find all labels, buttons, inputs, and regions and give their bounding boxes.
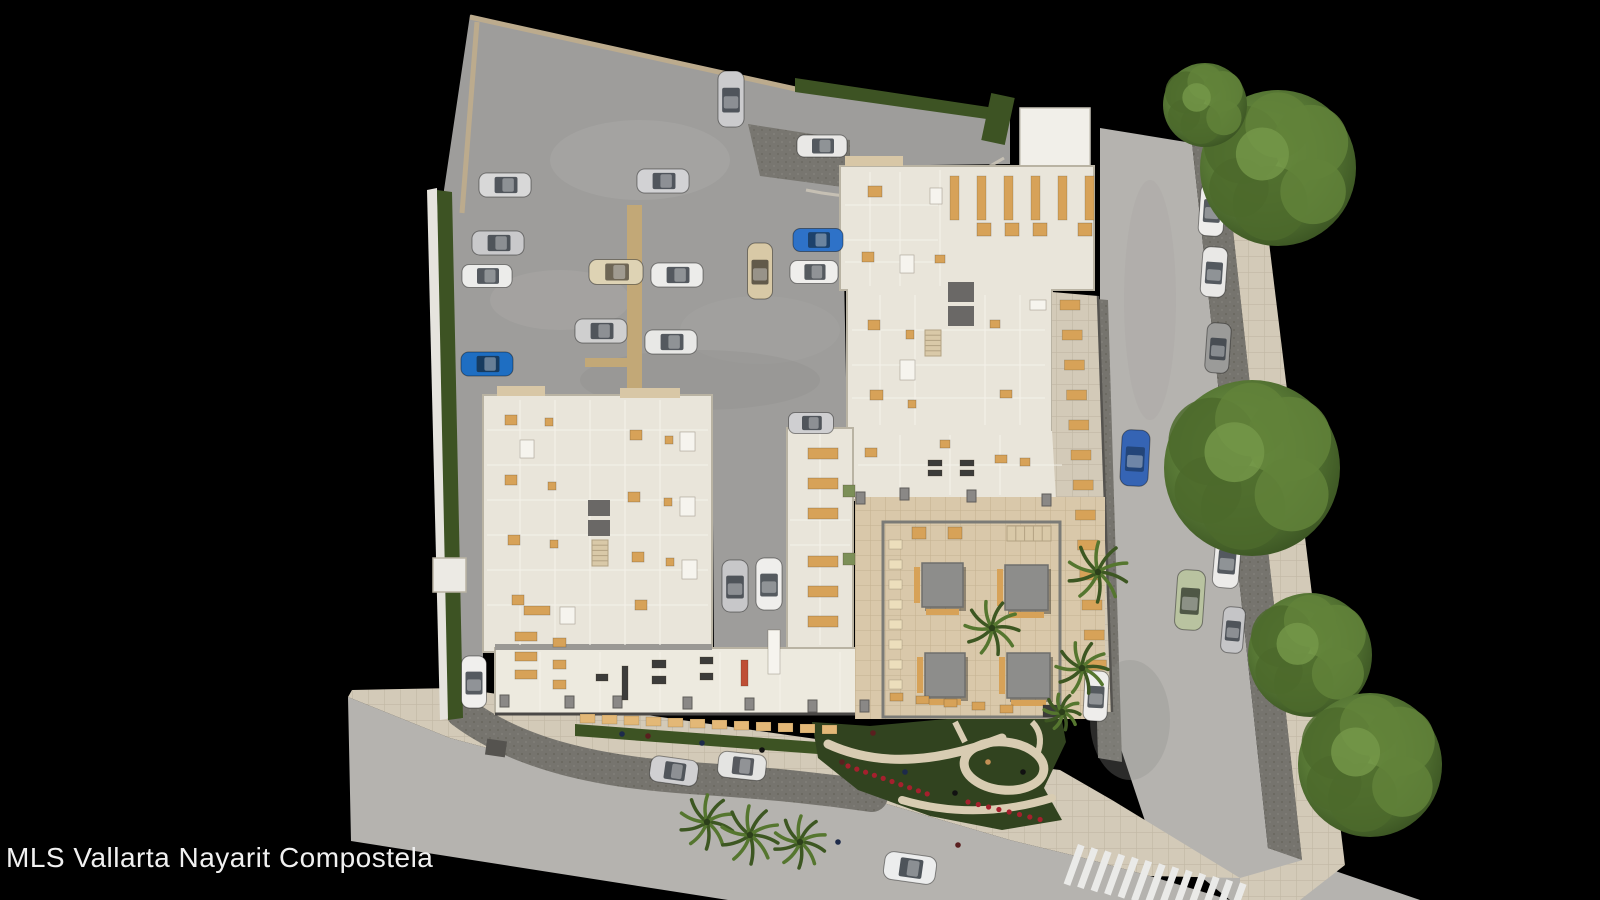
- pergola-chairs: [917, 657, 923, 693]
- furniture-amber: [808, 508, 838, 519]
- car: [645, 330, 697, 354]
- person: [699, 740, 705, 746]
- car: [589, 260, 643, 285]
- furniture-white: [1030, 300, 1046, 310]
- awnings: [800, 724, 815, 733]
- elevator-core: [948, 306, 974, 326]
- awnings: [646, 717, 661, 726]
- car: [1200, 246, 1228, 298]
- courtyard_chairs: [889, 540, 902, 549]
- car: [462, 656, 487, 708]
- terrace_tables: [1069, 420, 1089, 430]
- flower: [996, 807, 1001, 812]
- pergola: [914, 563, 966, 615]
- annex-roof-band: [495, 644, 712, 650]
- furniture-amber: [808, 616, 838, 627]
- furniture-amber: [995, 455, 1007, 463]
- flower: [916, 788, 921, 793]
- furniture-amber: [508, 535, 520, 545]
- furniture-dark: [928, 470, 942, 476]
- furniture-amber: [630, 430, 642, 440]
- site-plan-rendering: MLS Vallarta Nayarit Compostela: [0, 0, 1600, 900]
- car: [1204, 322, 1231, 374]
- flower: [1027, 814, 1032, 819]
- person: [955, 842, 961, 848]
- flower: [881, 776, 886, 781]
- awnings: [712, 720, 727, 729]
- furniture-amber: [1033, 223, 1047, 236]
- person: [839, 759, 845, 765]
- furniture-amber: [908, 400, 916, 408]
- lot-divider-stub: [585, 358, 627, 367]
- flower: [907, 785, 912, 790]
- furniture-amber: [1005, 223, 1019, 236]
- car: [462, 265, 512, 288]
- furniture-white: [520, 440, 534, 458]
- elevator-core: [948, 282, 974, 302]
- balcony: [845, 156, 903, 166]
- staircase: [1007, 526, 1051, 541]
- flower: [863, 770, 868, 775]
- person: [835, 839, 841, 845]
- car: [756, 558, 782, 610]
- car: [717, 751, 767, 782]
- pergola-chairs: [1011, 700, 1046, 706]
- flower: [854, 767, 859, 772]
- furniture-amber: [635, 600, 647, 610]
- furniture-amber: [664, 498, 672, 506]
- awnings: [822, 725, 837, 734]
- furniture-amber: [632, 552, 644, 562]
- furniture-amber: [870, 390, 883, 400]
- roof-pillar: [860, 700, 869, 712]
- person: [645, 733, 651, 739]
- furniture-amber: [916, 696, 929, 704]
- furniture-dark: [700, 673, 713, 680]
- furniture-white: [680, 432, 695, 451]
- restaurant_tables: [1085, 176, 1094, 220]
- restaurant_tables: [977, 176, 986, 220]
- furniture-amber: [940, 440, 950, 448]
- flower: [1017, 812, 1022, 817]
- person: [952, 790, 958, 796]
- awnings: [580, 714, 595, 723]
- elevator-core: [588, 500, 610, 516]
- furniture-white: [930, 188, 942, 204]
- terrace_tables: [1084, 630, 1104, 640]
- pergola-chairs: [999, 657, 1005, 694]
- furniture-white: [560, 607, 575, 624]
- furniture-dark: [622, 666, 628, 700]
- furniture-amber: [990, 320, 1000, 328]
- flower: [965, 799, 970, 804]
- courtyard_chairs: [889, 680, 902, 689]
- flower: [986, 804, 991, 809]
- flower: [845, 763, 850, 768]
- courtyard_chairs: [889, 620, 902, 629]
- courtyard_chairs: [889, 580, 902, 589]
- awnings: [756, 722, 771, 731]
- tree: [1298, 693, 1442, 837]
- terrace_tables: [1062, 330, 1082, 340]
- furniture-amber: [972, 702, 985, 710]
- car: [479, 173, 531, 197]
- courtyard_chairs: [889, 640, 902, 649]
- furniture-amber: [808, 478, 838, 489]
- roof-pillar: [683, 697, 692, 709]
- furniture-dark: [652, 660, 666, 668]
- balcony: [497, 386, 545, 396]
- furniture-dark: [960, 470, 974, 476]
- car: [1220, 606, 1246, 654]
- terrace_tables: [1073, 480, 1093, 490]
- car: [718, 71, 744, 127]
- terrace_tables: [1060, 300, 1080, 310]
- furniture-amber: [912, 527, 926, 539]
- tree: [1164, 380, 1340, 556]
- furniture-amber: [868, 186, 882, 197]
- furniture-amber: [1000, 390, 1012, 398]
- flower: [889, 779, 894, 784]
- awnings: [624, 716, 639, 725]
- furniture-amber: [553, 680, 566, 689]
- person: [619, 731, 625, 737]
- furniture-amber: [977, 223, 991, 236]
- car: [575, 319, 627, 343]
- car: [748, 243, 773, 299]
- furniture-dark: [652, 676, 666, 684]
- furniture-white: [682, 560, 697, 579]
- pergola-chairs: [914, 567, 920, 603]
- furniture-amber: [890, 693, 903, 701]
- restaurant_tables: [950, 176, 959, 220]
- pergola: [997, 565, 1051, 618]
- flower: [1007, 809, 1012, 814]
- roof-pillar: [1042, 494, 1051, 506]
- furniture-amber: [515, 670, 537, 679]
- tree: [1163, 63, 1247, 147]
- furniture-amber: [550, 540, 558, 548]
- furniture-amber: [862, 252, 874, 262]
- furniture-amber: [808, 586, 838, 597]
- furniture-amber: [906, 330, 914, 339]
- furniture-amber: [666, 558, 674, 566]
- roof-pillar: [613, 696, 622, 708]
- furniture-amber: [935, 255, 945, 263]
- furniture-amber: [505, 415, 517, 425]
- person: [759, 747, 765, 753]
- person: [985, 759, 991, 765]
- roof-pillar: [565, 696, 574, 708]
- terrace_tables: [1075, 510, 1095, 520]
- furniture-amber: [515, 652, 537, 661]
- furniture-amber: [868, 320, 880, 330]
- furniture-amber: [948, 527, 962, 539]
- terrace_tables: [1064, 360, 1084, 370]
- balcony: [620, 388, 680, 398]
- furniture-amber: [628, 492, 640, 502]
- furniture-green: [843, 553, 855, 565]
- furniture-dark: [700, 657, 713, 664]
- roof-pillar: [900, 488, 909, 500]
- person: [870, 730, 876, 736]
- courtyard_chairs: [889, 600, 902, 609]
- furniture-amber: [548, 482, 556, 490]
- flower: [1038, 817, 1043, 822]
- furniture-red: [741, 660, 748, 686]
- furniture-amber: [553, 660, 566, 669]
- furniture-amber: [665, 436, 673, 444]
- watermark-text: MLS Vallarta Nayarit Compostela: [6, 842, 433, 873]
- furniture-amber: [524, 606, 550, 615]
- car: [1120, 429, 1151, 486]
- furniture-dark: [596, 674, 608, 681]
- flower: [925, 791, 930, 796]
- furniture-dark: [928, 460, 942, 466]
- awnings: [690, 719, 705, 728]
- furniture-amber: [545, 418, 553, 426]
- drive-plate: [485, 739, 507, 758]
- roof-pillar: [500, 695, 509, 707]
- car: [472, 231, 524, 255]
- flower: [872, 773, 877, 778]
- awnings: [734, 721, 749, 730]
- car: [793, 229, 843, 252]
- furniture-amber: [808, 556, 838, 567]
- car: [789, 413, 834, 434]
- pergola: [999, 653, 1053, 706]
- car: [461, 352, 513, 376]
- furniture-amber: [865, 448, 877, 457]
- roof-pillar: [856, 492, 865, 504]
- car: [637, 169, 689, 193]
- car: [797, 135, 847, 157]
- restaurant_tables: [1058, 176, 1067, 220]
- furniture-white: [768, 630, 780, 674]
- car: [1174, 569, 1206, 631]
- furniture-white: [900, 360, 915, 380]
- gate-house: [433, 558, 466, 592]
- furniture-white: [900, 255, 914, 273]
- furniture-amber: [515, 632, 537, 641]
- furniture-amber: [1000, 705, 1013, 713]
- furniture-green: [843, 485, 855, 497]
- aerial-render-canvas: MLS Vallarta Nayarit Compostela: [0, 0, 1600, 900]
- furniture-amber: [944, 699, 957, 707]
- restaurant_tables: [1031, 176, 1040, 220]
- awnings: [778, 723, 793, 732]
- furniture-amber: [1020, 458, 1030, 466]
- pergola-chairs: [926, 609, 959, 615]
- furniture-amber: [553, 638, 566, 647]
- staircase: [592, 540, 608, 566]
- awnings: [668, 718, 683, 727]
- roof-pillar: [967, 490, 976, 502]
- roof-pillar: [745, 698, 754, 710]
- person: [902, 769, 908, 775]
- restaurant_tables: [1004, 176, 1013, 220]
- courtyard_chairs: [889, 560, 902, 569]
- courtyard_chairs: [889, 660, 902, 669]
- staircase: [925, 330, 941, 356]
- road-light-patch: [1124, 180, 1176, 420]
- roof-pillar: [808, 700, 817, 712]
- flower: [898, 782, 903, 787]
- car: [722, 560, 748, 612]
- elevator-core: [588, 520, 610, 536]
- flower: [976, 802, 981, 807]
- person: [1020, 769, 1026, 775]
- furniture-amber: [1078, 223, 1092, 236]
- furniture-dark: [960, 460, 974, 466]
- car: [651, 263, 703, 287]
- awnings: [602, 715, 617, 724]
- car: [790, 261, 838, 284]
- furniture-white: [680, 497, 695, 516]
- pergola-chairs: [997, 569, 1003, 606]
- terrace_tables: [1071, 450, 1091, 460]
- furniture-amber: [505, 475, 517, 485]
- lot-divider: [627, 205, 642, 395]
- furniture-amber: [808, 448, 838, 459]
- terrace_tables: [1067, 390, 1087, 400]
- furniture-amber: [512, 595, 524, 605]
